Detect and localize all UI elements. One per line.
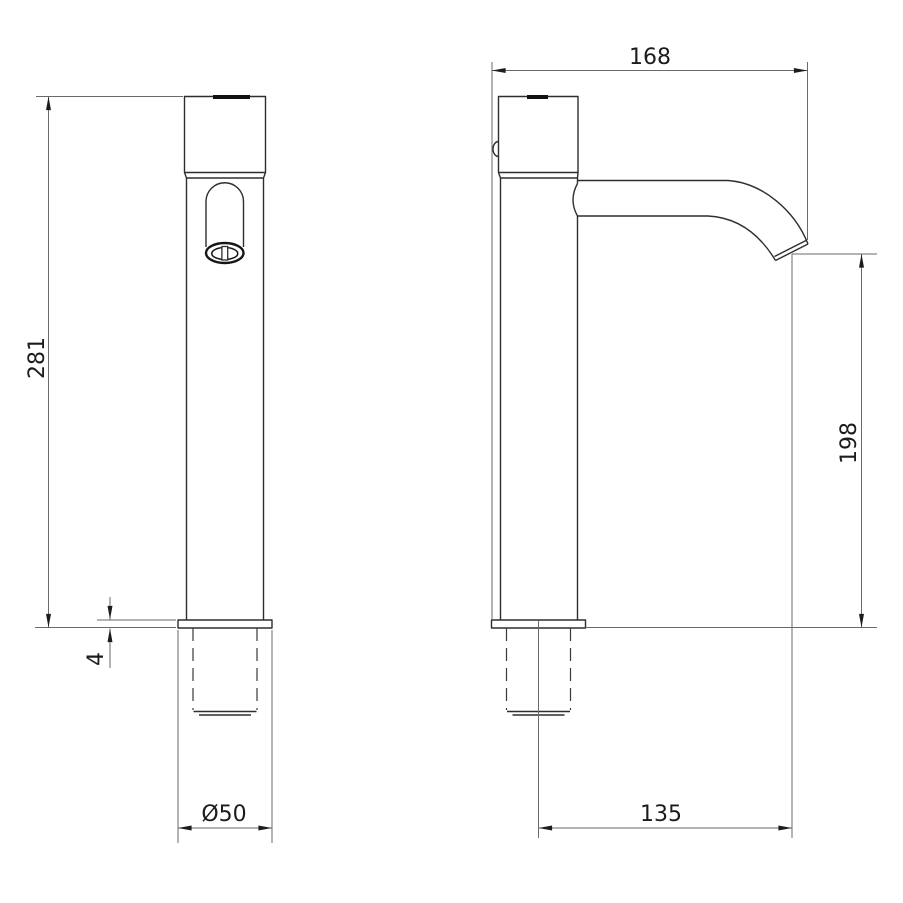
spout-top-contour [578, 181, 808, 245]
body-front [187, 178, 264, 620]
shank-hidden-lines-front [193, 628, 257, 710]
dim-label-plate-thickness: 4 [84, 652, 109, 666]
dimension-plate-thickness: 4 [84, 597, 176, 668]
shank-end-front [194, 712, 257, 716]
side-view: 168 198 135 [492, 45, 878, 838]
joint-ring-side [499, 173, 579, 179]
drawing-canvas: 281 4 Ø50 [0, 0, 903, 903]
dimension-outlet-height: 198 [586, 254, 878, 628]
dimension-spout-reach: 135 [539, 254, 793, 838]
dim-label-depth: 168 [629, 45, 671, 70]
spout-root-fillet [573, 184, 578, 217]
lever-handle-front [206, 183, 244, 247]
body-side [501, 178, 578, 620]
lever-end-slot [222, 247, 228, 261]
sensor-button [493, 142, 498, 157]
base-plate-front [178, 620, 272, 628]
cap-side [499, 97, 579, 173]
dim-label-spout-reach: 135 [640, 802, 682, 827]
faucet-technical-drawing: 281 4 Ø50 [0, 0, 903, 903]
dim-label-outlet-height: 198 [837, 422, 862, 464]
front-view: 281 4 Ø50 [25, 97, 272, 844]
dim-label-height: 281 [25, 337, 50, 379]
dimension-base-diameter: Ø50 [178, 630, 272, 843]
cap-front [185, 97, 266, 173]
dimension-depth: 168 [492, 45, 808, 619]
spout-bottom-contour [578, 216, 776, 261]
dim-label-base-diameter: Ø50 [201, 802, 246, 827]
dimension-height: 281 [25, 97, 183, 628]
joint-ring-front [185, 173, 266, 179]
